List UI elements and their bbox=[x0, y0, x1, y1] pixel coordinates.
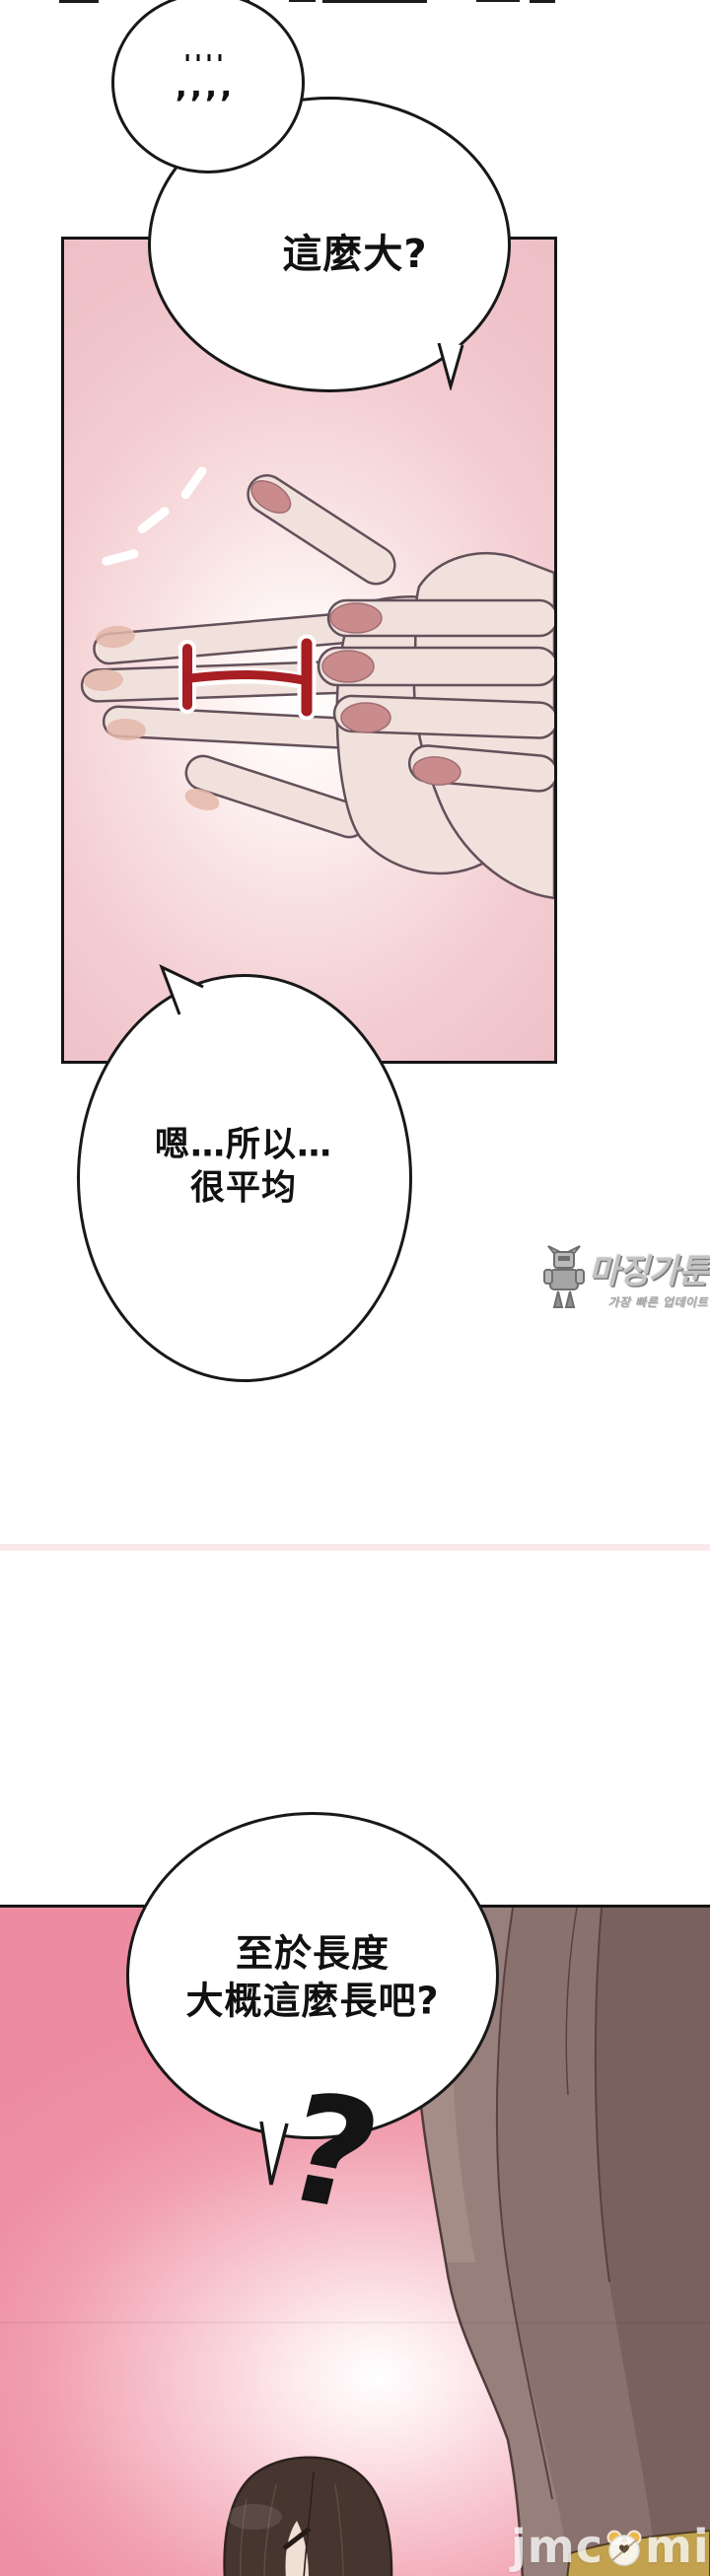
jmcomic-text-suffix: mic bbox=[645, 2520, 710, 2573]
top-cutoff-fragment bbox=[289, 0, 316, 2]
top-cutoff-fragment bbox=[59, 0, 99, 3]
length-line1: 至於長度 bbox=[185, 1931, 439, 1979]
jmcomic-text-prefix: jmc bbox=[511, 2520, 603, 2573]
faint-line bbox=[0, 2322, 710, 2324]
top-cutoff-fragment bbox=[476, 0, 520, 2]
average-line2: 很平均 bbox=[155, 1167, 332, 1211]
murmur-line2: ,,,, bbox=[176, 65, 236, 104]
speech-bubble-size-tail bbox=[435, 343, 468, 390]
robot-mascot-icon bbox=[542, 1244, 586, 1309]
sparkle-marks bbox=[101, 465, 208, 567]
top-cutoff-fragment bbox=[530, 0, 555, 3]
dark-haired-head bbox=[225, 2458, 391, 2576]
speech-text-length: 至於長度 大概這麼長吧? bbox=[185, 1931, 439, 2025]
jmcomic-watermark: jmc mic bbox=[511, 2520, 710, 2573]
speech-text-murmur: '''' ,,,, bbox=[176, 49, 236, 105]
top-cutoff-fragment bbox=[322, 0, 427, 3]
mazinga-watermark: 마징가툰 가장 빠른 업데이트 bbox=[515, 1244, 708, 1310]
mazinga-title: 마징가툰 bbox=[589, 1244, 708, 1292]
comic-page: 這麼大? '''' ,,,, 嗯…所以… 很平均 bbox=[0, 0, 710, 2576]
length-line2: 大概這麼長吧? bbox=[185, 1978, 439, 2025]
speech-text-size: 這麼大? bbox=[282, 230, 427, 279]
speech-bubble-average-tail bbox=[158, 961, 207, 1018]
faint-panel-remnant bbox=[0, 1544, 710, 1551]
speech-text-average: 嗯…所以… 很平均 bbox=[155, 1124, 332, 1211]
bear-icon bbox=[604, 2529, 644, 2570]
mazinga-subtitle: 가장 빠른 업데이트 bbox=[589, 1293, 708, 1310]
average-line1: 嗯…所以… bbox=[155, 1124, 332, 1167]
